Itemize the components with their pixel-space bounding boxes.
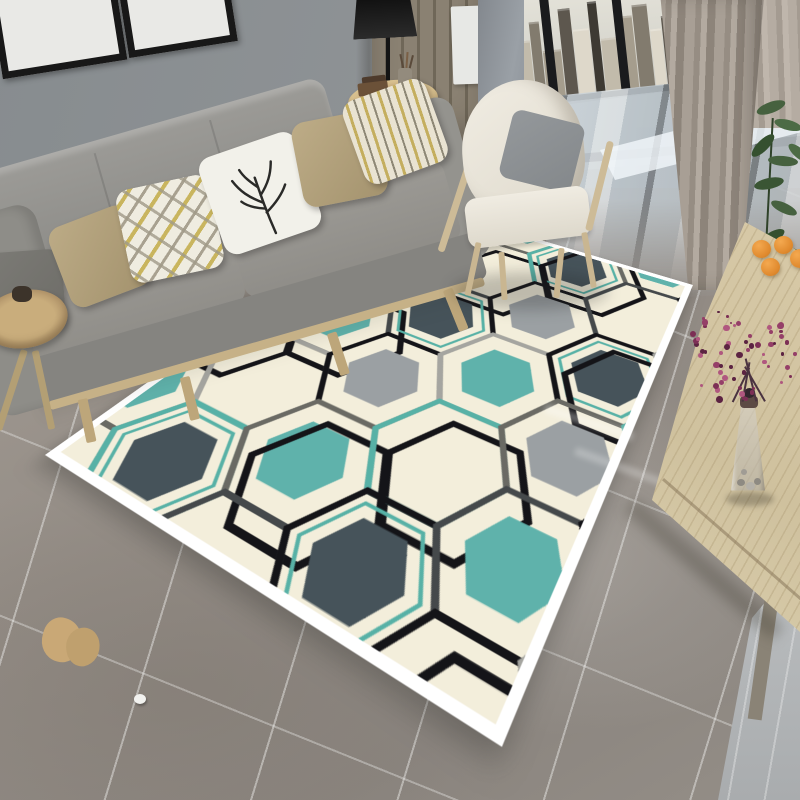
flower-dot: [767, 325, 772, 330]
flower-dot: [752, 387, 755, 390]
flower-dot: [736, 352, 742, 358]
floor-pebble: [134, 694, 146, 704]
sofa-leg: [327, 331, 350, 376]
flower-dot: [702, 319, 708, 325]
flower-dot: [785, 365, 790, 370]
flower-dot: [755, 342, 761, 348]
flower-dot: [736, 321, 741, 326]
vase-pebble: [741, 469, 747, 475]
flower-dot: [690, 331, 696, 337]
flower-cluster: [676, 300, 800, 420]
orange-fruit: [761, 258, 780, 276]
flower-dot: [700, 384, 703, 387]
flower-dot: [716, 396, 722, 402]
flower-dot: [785, 340, 789, 344]
flower-dot: [769, 330, 773, 334]
floor-lamp-shade: [351, 0, 417, 40]
flower-dot: [730, 322, 733, 325]
sofa-leg: [180, 376, 200, 421]
flower-dot: [732, 377, 736, 381]
orange-fruit: [752, 240, 771, 258]
flower-dot: [780, 381, 783, 384]
flower-dot: [781, 352, 784, 355]
stool-cup: [12, 286, 32, 302]
flower-dot: [719, 351, 723, 355]
flower-dot: [724, 344, 730, 350]
flower-dot: [742, 370, 747, 375]
flower-dot: [698, 353, 704, 359]
flower-dot: [726, 315, 729, 318]
flower-dot: [729, 365, 733, 369]
vase-pebble: [754, 478, 761, 485]
armchair-shadow: [452, 272, 608, 310]
flower-dot: [722, 375, 728, 381]
flower-dot: [696, 337, 700, 341]
flower-dot: [717, 311, 720, 314]
flower-dot: [738, 386, 742, 390]
sofa-leg: [78, 398, 97, 443]
flower-dot: [719, 380, 724, 385]
framed-art-canvas: [0, 0, 117, 69]
vase-pebble: [737, 479, 745, 486]
flower-dot: [779, 330, 783, 334]
flower-dot: [749, 343, 755, 349]
vase-shadow: [726, 492, 774, 506]
flower-dot: [789, 375, 792, 378]
framed-art-canvas: [126, 0, 227, 48]
flower-dot: [773, 342, 776, 345]
flower-dot: [723, 325, 729, 331]
flower-dot: [762, 360, 767, 365]
flower-dot: [719, 364, 723, 368]
flower-dot: [762, 353, 765, 356]
flower-dot: [793, 352, 797, 356]
flower-dot: [750, 390, 755, 395]
orange-fruit: [774, 236, 793, 254]
flower-dot: [748, 334, 752, 338]
flower-dot: [733, 324, 736, 327]
flower-dot: [779, 334, 784, 339]
scene: [0, 0, 800, 800]
flower-dot: [767, 365, 770, 368]
flower-dot: [744, 340, 749, 345]
flower-dot: [777, 323, 783, 329]
